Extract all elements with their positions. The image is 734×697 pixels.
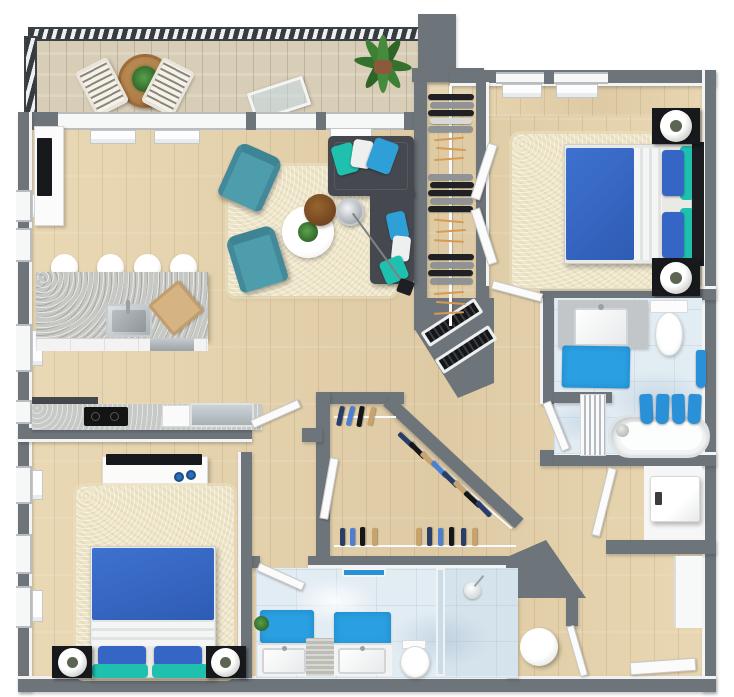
cooktop-burner — [110, 412, 119, 421]
clothes-item — [461, 528, 466, 546]
bath2-sink — [338, 648, 386, 674]
clothes-item — [350, 528, 355, 546]
window-sill — [32, 470, 43, 500]
hall-wall-stub — [302, 428, 322, 442]
left-window — [16, 466, 32, 504]
wall-pier — [246, 112, 256, 130]
window-sill — [32, 590, 43, 622]
left-window — [16, 534, 32, 574]
clothes-item — [340, 528, 345, 546]
clothes-item — [430, 182, 474, 188]
sphere-lamp-center — [220, 657, 231, 668]
clothes-item — [430, 102, 474, 108]
bathtub-basin — [620, 422, 702, 450]
clothes-item — [372, 528, 377, 546]
bath2-mat — [334, 612, 391, 645]
tub-towel — [655, 394, 669, 424]
sphere-lamp-center — [670, 120, 682, 132]
vanity-plant — [254, 616, 269, 631]
clothes-item — [438, 528, 443, 546]
left-window — [16, 190, 32, 222]
sphere-lamp-center — [670, 272, 682, 284]
left-window — [16, 586, 32, 628]
bed1-pillow-blue — [662, 212, 684, 258]
bath1-left-wall-lower — [540, 450, 554, 466]
bed1-pillow-blue — [662, 150, 684, 196]
dishwasher — [150, 338, 194, 351]
tub-faucet — [616, 424, 629, 437]
clothes-item — [360, 527, 365, 546]
left-window — [16, 400, 32, 424]
bath1-sink — [574, 308, 628, 346]
floor-plan — [0, 0, 734, 697]
bedroom2-right-wall — [238, 452, 252, 678]
towel-bar — [342, 568, 386, 577]
clothes-item — [428, 94, 474, 100]
clothes-item — [428, 174, 473, 180]
clothes-item — [430, 118, 472, 124]
bath1-faucet — [598, 304, 604, 310]
round-tank — [520, 628, 558, 666]
closet1-left-wall — [414, 82, 427, 330]
bed2-pillow-blue — [154, 646, 202, 666]
bed2-duvet — [92, 548, 214, 620]
washer-vent — [655, 492, 662, 505]
cooktop-burner — [91, 412, 100, 421]
window-sill — [556, 84, 598, 98]
bed1-sheet — [634, 148, 662, 260]
bed2-sheet — [92, 620, 214, 646]
bottom-outer-wall — [18, 676, 716, 692]
bath2-faucet — [282, 646, 287, 651]
tub-towel — [671, 394, 685, 424]
clothes-item — [416, 528, 421, 546]
shower-head — [464, 582, 481, 599]
bed2-teal-pillow — [92, 664, 148, 678]
window-sill — [90, 130, 136, 144]
sphere-lamp-center — [67, 657, 78, 668]
bed1-headboard — [692, 142, 704, 266]
clothes-item — [428, 110, 474, 116]
bath1-mat — [562, 345, 631, 388]
clothes-item — [427, 527, 432, 546]
bed1-duvet — [566, 148, 634, 260]
wall-towel — [696, 350, 706, 388]
left-window — [16, 324, 32, 372]
tub-towel — [639, 394, 654, 425]
decor-vase — [186, 470, 196, 480]
clothes-item — [428, 190, 474, 196]
balcony-railing-left — [24, 36, 37, 120]
bath1-toilet-bowl — [655, 312, 683, 356]
clothes-item — [428, 206, 473, 212]
window-pier — [544, 72, 554, 84]
wall-niche — [674, 556, 702, 628]
clothes-item — [430, 198, 473, 204]
window-sill — [154, 130, 200, 144]
side-table — [304, 194, 336, 226]
left-window — [16, 228, 32, 262]
dresser-tv — [106, 454, 202, 465]
clothes-item — [430, 278, 473, 284]
decor-vase — [174, 472, 184, 482]
bath2-top-wall — [308, 556, 520, 568]
bed2-teal-pillow — [152, 664, 208, 678]
window-sill — [502, 84, 542, 98]
palm-plant — [350, 32, 416, 96]
tub-towel — [687, 394, 702, 425]
laundry-basket — [306, 638, 334, 676]
bedroom2-top-wall — [18, 428, 252, 442]
bath2-toilet-bowl — [400, 646, 430, 678]
wall-pier — [316, 112, 326, 130]
clothes-item — [472, 528, 477, 546]
sink-faucet — [126, 300, 130, 314]
clothes-item — [428, 254, 474, 260]
bath1-left-wall — [540, 298, 554, 404]
stainless-counter — [190, 403, 254, 427]
bath2-faucet — [360, 646, 365, 651]
wall-tv — [37, 138, 52, 196]
bath2-sink — [262, 648, 306, 674]
clothes-item — [428, 126, 473, 132]
counter-cabinet — [162, 405, 190, 427]
closet2-rail — [334, 416, 396, 418]
shower-divider — [436, 568, 445, 676]
clothes-item — [430, 262, 474, 268]
bed2-pillow-blue — [98, 646, 146, 666]
wc-right-wall — [566, 596, 578, 626]
shower-curtain — [580, 394, 606, 456]
laundry-bottom-wall — [606, 540, 716, 554]
shower-zone-tint — [445, 568, 518, 676]
clothes-item — [449, 527, 454, 546]
palm-pot — [374, 60, 392, 74]
clothes-item — [428, 270, 473, 276]
